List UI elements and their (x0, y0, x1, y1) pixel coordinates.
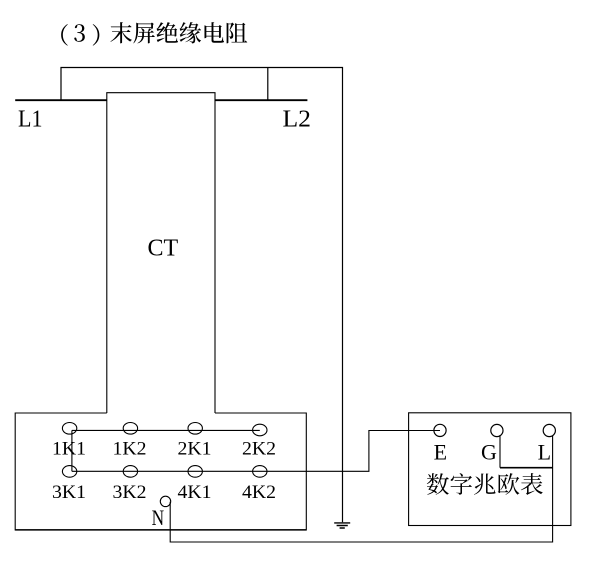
svg-text:L: L (538, 440, 551, 465)
svg-text:4K1: 4K1 (178, 482, 212, 503)
svg-text:L2: L2 (283, 107, 312, 133)
svg-text:1K1: 1K1 (52, 439, 86, 460)
svg-text:3K1: 3K1 (52, 482, 86, 503)
svg-text:G: G (481, 440, 497, 465)
svg-text:4K2: 4K2 (242, 482, 276, 503)
svg-text:CT: CT (148, 236, 179, 262)
svg-text:2K1: 2K1 (178, 439, 212, 460)
svg-text:3K2: 3K2 (113, 482, 147, 503)
svg-text:E: E (434, 440, 447, 465)
svg-text:2K2: 2K2 (242, 439, 276, 460)
svg-text:L1: L1 (18, 107, 43, 133)
svg-text:N: N (152, 505, 165, 530)
svg-text:1K2: 1K2 (113, 439, 147, 460)
